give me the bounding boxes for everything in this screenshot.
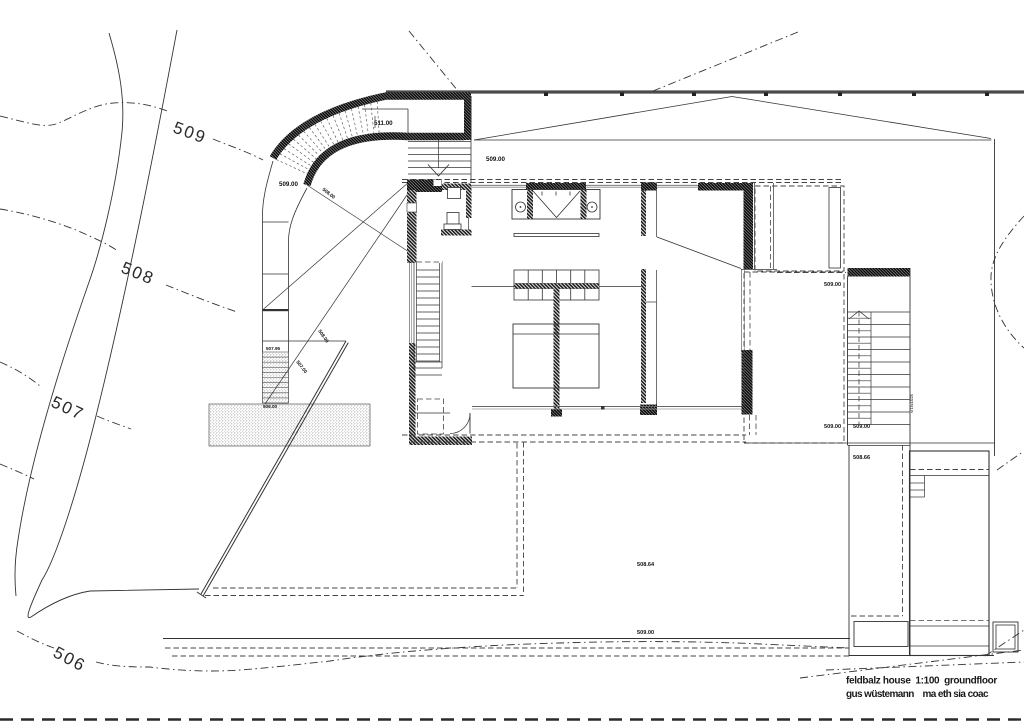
svg-text:509.00: 509.00 xyxy=(853,424,870,430)
svg-text:506.00: 506.00 xyxy=(263,404,277,409)
svg-text:509.00: 509.00 xyxy=(637,630,654,636)
svg-text:st 16x18/28: st 16x18/28 xyxy=(910,394,914,413)
svg-text:508.64: 508.64 xyxy=(637,562,655,568)
svg-text:507.95: 507.95 xyxy=(266,346,280,351)
svg-text:gus wüstemann ma eth sia co: gus wüstemann ma eth sia coac xyxy=(846,689,989,700)
svg-text:feldbalz house 1:100 groundf: feldbalz house 1:100 groundfloor xyxy=(846,676,997,687)
svg-text:509.00: 509.00 xyxy=(824,424,841,430)
svg-text:508.66: 508.66 xyxy=(853,455,870,461)
svg-text:511.00: 511.00 xyxy=(374,120,393,127)
svg-text:509.00: 509.00 xyxy=(279,181,298,188)
svg-text:509.00: 509.00 xyxy=(486,156,505,163)
svg-text:509.00: 509.00 xyxy=(824,282,841,288)
